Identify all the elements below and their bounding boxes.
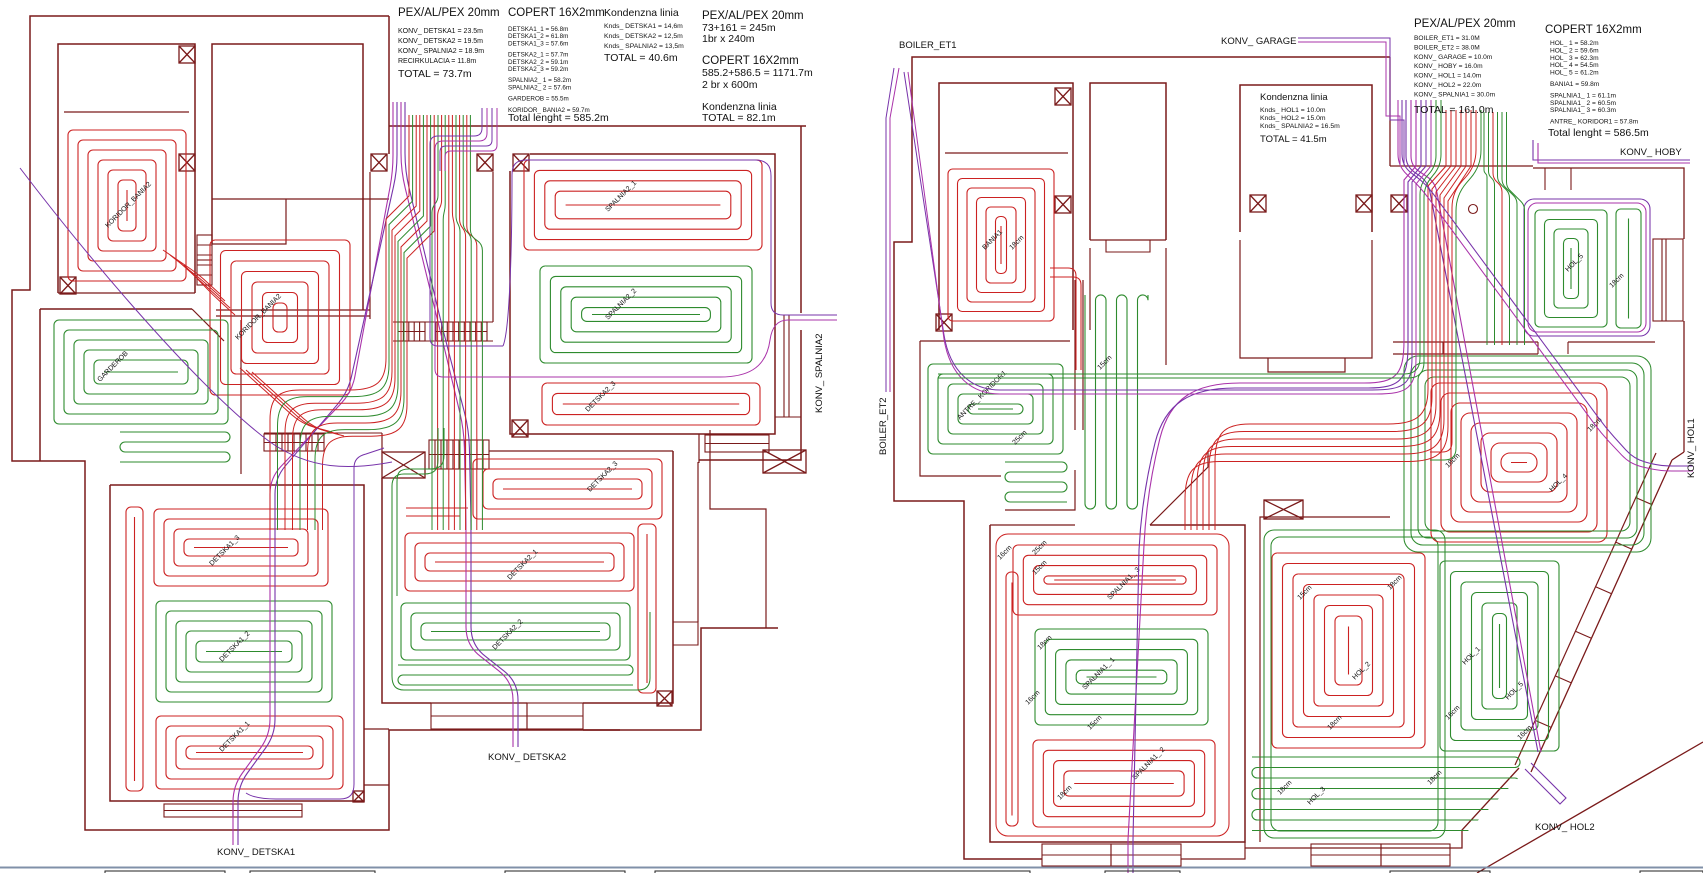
svg-text:Kondenzna linia: Kondenzna linia [1260,92,1328,103]
svg-text:KONV_ DETSKA2 = 19.5m: KONV_ DETSKA2 = 19.5m [398,38,483,45]
svg-text:Knds_ DETSKA2 = 12,5m: Knds_ DETSKA2 = 12,5m [604,33,683,40]
svg-text:DETSKA1_1 = 56.8m: DETSKA1_1 = 56.8m [508,26,568,33]
svg-text:TOTAL = 41.5m: TOTAL = 41.5m [1260,134,1327,145]
svg-text:BANIA1 = 59.8m: BANIA1 = 59.8m [1550,81,1600,88]
svg-text:HOL_ 5 = 61.2m: HOL_ 5 = 61.2m [1550,70,1599,77]
svg-text:BOILER_ET2 = 38.0M: BOILER_ET2 = 38.0M [1414,44,1480,51]
svg-text:Kondenzna linia: Kondenzna linia [604,7,679,19]
svg-text:2 br x 600m: 2 br x 600m [702,79,758,91]
svg-text:GARDEROB = 55.5m: GARDEROB = 55.5m [508,96,569,103]
svg-text:DETSKA1_3 = 57.6m: DETSKA1_3 = 57.6m [508,40,568,47]
svg-text:PEX/AL/PEX 20mm: PEX/AL/PEX 20mm [1414,18,1516,30]
svg-text:DETSKA2_1 = 57.7m: DETSKA2_1 = 57.7m [508,52,568,59]
svg-text:1br x 240m: 1br x 240m [702,33,755,45]
svg-text:SPALNIA1_ 3 = 60.3m: SPALNIA1_ 3 = 60.3m [1550,107,1617,114]
svg-text:COPERT 16X2mm: COPERT 16X2mm [702,55,799,67]
svg-text:RECIRKULACIA = 11.8m: RECIRKULACIA = 11.8m [398,58,476,65]
svg-text:BOILER_ET2: BOILER_ET2 [878,397,889,455]
svg-text:Knds_ SPALNIA2 = 16.5m: Knds_ SPALNIA2 = 16.5m [1260,123,1340,130]
svg-text:DETSKA2_3 = 59.2m: DETSKA2_3 = 59.2m [508,66,568,73]
svg-text:KONV_ DETSKA1: KONV_ DETSKA1 [217,847,295,858]
svg-text:BOILER_ET1: BOILER_ET1 [899,40,957,51]
svg-text:KONV_ GARAGE: KONV_ GARAGE [1221,36,1297,47]
svg-text:KONV_ HOL1 = 14.0m: KONV_ HOL1 = 14.0m [1414,73,1482,80]
svg-text:TOTAL = 73.7m: TOTAL = 73.7m [398,68,472,80]
svg-text:Total lenght = 586.5m: Total lenght = 586.5m [1548,127,1649,139]
svg-text:KONV_ DETSKA1 = 23.5m: KONV_ DETSKA1 = 23.5m [398,28,483,35]
svg-text:HOL_ 3 = 62.3m: HOL_ 3 = 62.3m [1550,55,1599,62]
svg-text:KONV_ SPALNIA1 = 30.0m: KONV_ SPALNIA1 = 30.0m [1414,91,1496,98]
svg-text:PEX/AL/PEX 20mm: PEX/AL/PEX 20mm [702,10,804,22]
svg-text:Knds_ HOL2 = 15.0m: Knds_ HOL2 = 15.0m [1260,115,1326,122]
svg-text:KONV_ HOL1: KONV_ HOL1 [1686,418,1697,478]
svg-text:SPALNIA1_ 1 = 61.1m: SPALNIA1_ 1 = 61.1m [1550,92,1617,99]
svg-text:SPALNIA2_ 2 = 57.6m: SPALNIA2_ 2 = 57.6m [508,84,571,91]
svg-text:SPALNIA2_ 1 = 58.2m: SPALNIA2_ 1 = 58.2m [508,77,571,84]
svg-text:HOL_ 4 = 54.5m: HOL_ 4 = 54.5m [1550,62,1599,69]
svg-text:ANTRE_ KORIDOR1 = 57.8m: ANTRE_ KORIDOR1 = 57.8m [1550,119,1639,126]
svg-text:HOL_ 2 = 59.6m: HOL_ 2 = 59.6m [1550,47,1599,54]
svg-text:Knds_ DETSKA1 = 14,6m: Knds_ DETSKA1 = 14,6m [604,23,683,30]
svg-text:Knds_ SPALNIA2 = 13,5m: Knds_ SPALNIA2 = 13,5m [604,43,684,50]
svg-text:KONV_ SPALNIA2: KONV_ SPALNIA2 [814,333,825,413]
svg-text:KONV_ HOBY: KONV_ HOBY [1620,147,1682,158]
svg-text:COPERT 16X2mm: COPERT 16X2mm [508,7,605,19]
svg-text:KONV_ GARAGE = 10.0m: KONV_ GARAGE = 10.0m [1414,54,1493,61]
svg-text:DETSKA1_2 = 61.8m: DETSKA1_2 = 61.8m [508,33,568,40]
svg-text:KONV_ HOL2 = 22.0m: KONV_ HOL2 = 22.0m [1414,82,1482,89]
svg-text:TOTAL = 161.0m: TOTAL = 161.0m [1414,104,1494,116]
svg-text:COPERT 16X2mm: COPERT 16X2mm [1545,24,1642,36]
svg-text:SPALNIA1_ 2 = 60.5m: SPALNIA1_ 2 = 60.5m [1550,100,1617,107]
svg-text:TOTAL = 40.6m: TOTAL = 40.6m [604,52,678,64]
svg-text:PEX/AL/PEX 20mm: PEX/AL/PEX 20mm [398,7,500,19]
svg-text:KONV_ DETSKA2: KONV_ DETSKA2 [488,752,566,763]
svg-text:KONV_ HOBY = 16.0m: KONV_ HOBY = 16.0m [1414,63,1483,70]
svg-text:BOILER_ET1 = 31.0M: BOILER_ET1 = 31.0M [1414,35,1480,42]
svg-text:KONV_ SPALNIA2 = 18.9m: KONV_ SPALNIA2 = 18.9m [398,48,484,55]
svg-text:HOL_ 1 = 58.2m: HOL_ 1 = 58.2m [1550,40,1599,47]
svg-text:585.2+586.5 = 1171.7m: 585.2+586.5 = 1171.7m [702,67,813,79]
svg-text:Total lenght = 585.2m: Total lenght = 585.2m [508,112,609,124]
svg-text:Knds_ HOL1 = 10.0m: Knds_ HOL1 = 10.0m [1260,107,1326,114]
svg-text:KONV_ HOL2: KONV_ HOL2 [1535,822,1595,833]
svg-text:DETSKA2_2 = 59.1m: DETSKA2_2 = 59.1m [508,59,568,66]
svg-text:TOTAL = 82.1m: TOTAL = 82.1m [702,112,776,124]
